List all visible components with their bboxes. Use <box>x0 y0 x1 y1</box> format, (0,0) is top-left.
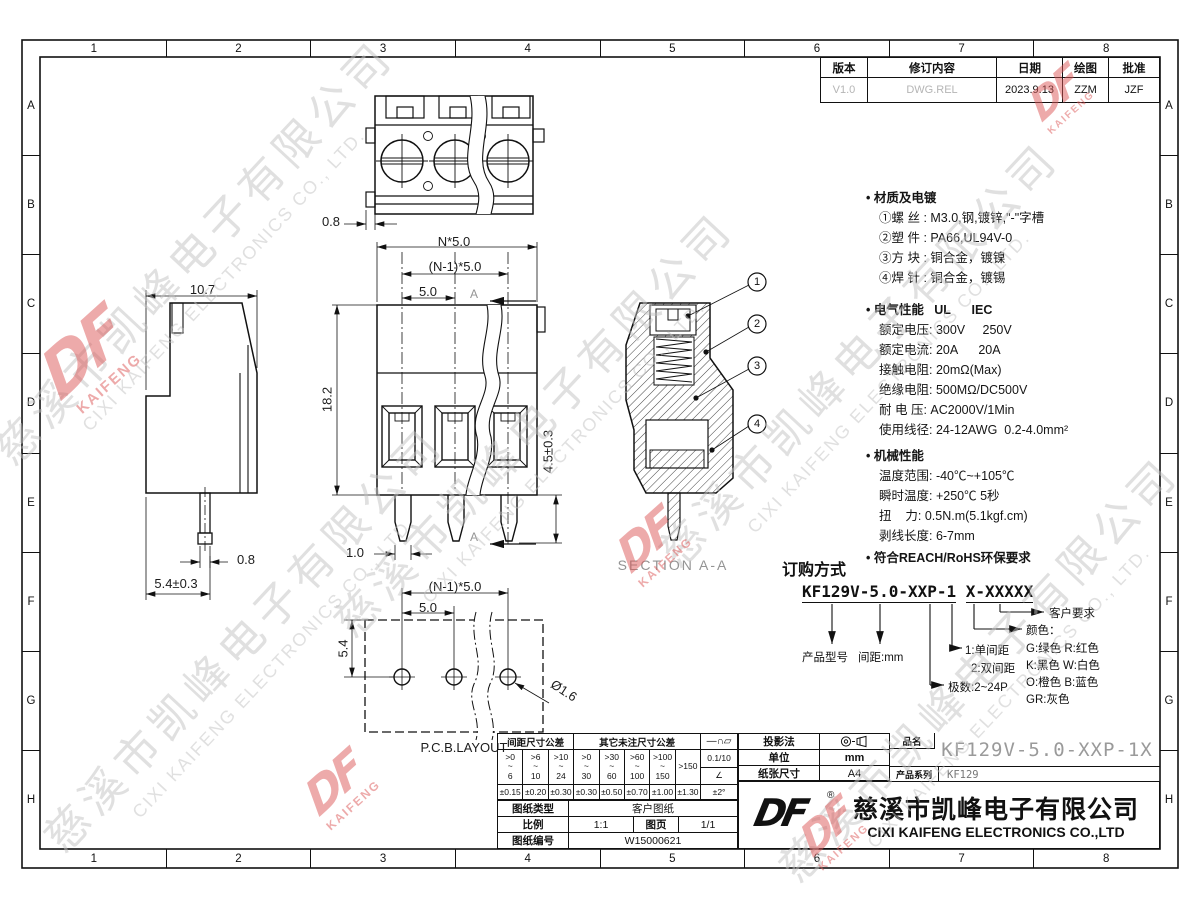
ordering-label-color-title: 颜色： <box>1026 622 1061 638</box>
company-name-en: CIXI KAIFENG ELECTRONICS CO.,LTD <box>841 824 1151 840</box>
rev-approved: JZF <box>1109 78 1159 102</box>
doc-no-label: 图纸编号 <box>498 833 569 848</box>
spec-line: 温度范围: -40℃~+105℃ <box>879 466 1166 486</box>
spec-line: ①螺 丝 : M3.0,钢,镀锌,"-"字槽 <box>879 208 1166 228</box>
page-label: 图页 <box>634 817 679 832</box>
spec-line: 扭 力: 0.5N.m(5.1kgf.cm) <box>879 506 1166 526</box>
ordering-code-suffix: X-XXXXX <box>966 582 1033 603</box>
doc-type-value: 客户图纸 <box>569 801 737 816</box>
page-value: 1/1 <box>679 817 737 832</box>
company-logo: DF <box>751 794 809 832</box>
tol-angle-value: ±2° <box>701 785 737 799</box>
ruler-label: 7 <box>890 849 1035 868</box>
ordering-label-pitch: 间距:mm <box>858 649 903 665</box>
ruler-label: H <box>22 751 40 849</box>
paper-value: A4 <box>820 766 889 781</box>
spec-mechanical: • 机械性能 温度范围: -40℃~+105℃ 瞬时温度: +250℃ 5秒 扭… <box>866 446 1166 546</box>
spec-line: ④焊 针 : 铜合金，镀锡 <box>879 268 1166 288</box>
spec-line: 额定电流: 20A 20A <box>879 340 1166 360</box>
tol-range: >0 ~ 30 <box>574 750 599 785</box>
spec-line: 剥线长度: 6-7mm <box>879 526 1166 546</box>
spec-line: 使用线径: 24-12AWG 0.2-4.0mm² <box>879 420 1166 440</box>
spec-material-title: • 材质及电镀 <box>866 188 1166 208</box>
projection-symbol <box>820 734 889 749</box>
dim-height: 18.2 <box>320 380 335 420</box>
tol-range: >0 ~ 6 <box>498 750 523 785</box>
dim-pcb-pitch: 5.0 <box>408 600 448 615</box>
doc-no-value: W15000621 <box>569 833 737 848</box>
tol-range: >6 ~ 10 <box>523 750 548 785</box>
spec-line: ③方 块 : 铜合金，镀镍 <box>879 248 1166 268</box>
ruler-label: 8 <box>1034 40 1178 57</box>
ruler-label: 1 <box>22 40 167 57</box>
doc-type-label: 图纸类型 <box>498 801 569 816</box>
spec-line: 接触电阻: 20mΩ(Max) <box>879 360 1166 380</box>
front-view <box>332 305 562 560</box>
spec-line: 耐 电 压: AC2000V/1Min <box>879 400 1166 420</box>
ordering-color-row: K:黑色 W:白色 <box>1026 657 1100 673</box>
ruler-label: 2 <box>167 849 312 868</box>
series-label: 产品系列 <box>890 767 939 782</box>
dim-pin-length: 4.5±0.3 <box>541 422 556 482</box>
revision-table: 版本 修订内容 日期 绘图 批准 V1.0 DWG.REL 2023.9.13 … <box>820 57 1160 103</box>
tol-value: ±0.30 <box>574 785 599 799</box>
dim-side-pin: 0.8 <box>231 552 261 567</box>
ruler-label: 6 <box>745 40 890 57</box>
spec-line: 绝缘电阻: 500MΩ/DC500V <box>879 380 1166 400</box>
rev-content: DWG.REL <box>868 78 997 102</box>
spec-electrical: • 电气性能 UL IEC 额定电压: 300V 250V 额定电流: 20A … <box>866 300 1166 440</box>
registered-mark: ® <box>827 790 834 801</box>
tol-value: ±1.30 <box>676 785 701 799</box>
tol-range: >30 ~ 60 <box>600 750 625 785</box>
rev-version: V1.0 <box>821 78 868 102</box>
ruler-label: F <box>22 553 40 652</box>
ruler-label: 5 <box>601 849 746 868</box>
scale-value: 1:1 <box>569 817 634 832</box>
ruler-label: 4 <box>456 849 601 868</box>
ruler-label: A <box>22 57 40 156</box>
section-view <box>626 273 766 540</box>
ordering-color-row: O:橙色 B:蓝色 <box>1026 674 1098 690</box>
spec-line: 额定电压: 300V 250V <box>879 320 1166 340</box>
ordering-label-product: 产品型号 <box>802 649 848 665</box>
ruler-bottom: 12345678 <box>22 849 1178 868</box>
dim-pcb-row: 5.4 <box>336 631 351 667</box>
ruler-label: G <box>1160 652 1178 751</box>
rev-date: 2023.9.13 <box>997 78 1063 102</box>
projection-label: 投影法 <box>739 734 820 749</box>
ruler-label: C <box>22 255 40 354</box>
tolerance-table: 间距尺寸公差 其它未注尺寸公差 —∩▱ >0 ~ 6 >6 ~ 10 >10 ~… <box>497 733 738 800</box>
dim-pcb-span: (N-1)*5.0 <box>410 579 500 594</box>
balloon-4: 4 <box>748 415 766 433</box>
dim-topview-0_8: 0.8 <box>314 214 348 229</box>
series-value: KF129 <box>939 767 1160 782</box>
spec-line: 瞬时温度: +250℃ 5秒 <box>879 486 1166 506</box>
tol-value: ±1.00 <box>650 785 675 799</box>
ruler-label: F <box>1160 553 1178 652</box>
balloon-1: 1 <box>748 273 766 291</box>
ruler-left: ABCDEFGH <box>22 57 40 849</box>
rev-header: 修订内容 <box>868 58 997 78</box>
spec-compliance: • 符合REACH/RoHS环保要求 <box>866 548 1031 568</box>
balloon-2: 2 <box>748 315 766 333</box>
ruler-label: 4 <box>456 40 601 57</box>
dim-side-offset: 5.4±0.3 <box>144 576 208 591</box>
dim-pin-width: 1.0 <box>340 545 370 560</box>
rev-header: 批准 <box>1109 58 1159 78</box>
tol-flatness-cell: 0.1/10 ∠ <box>701 750 737 785</box>
ordering-label-double: 2:双间距 <box>971 660 1015 676</box>
rev-header: 版本 <box>821 58 868 78</box>
tol-value: ±0.15 <box>498 785 523 799</box>
dim-side-width: 10.7 <box>180 282 225 297</box>
scale-label: 比例 <box>498 817 569 832</box>
ruler-label: A <box>1160 57 1178 156</box>
ordering-label-poles: 极数:2~24P <box>948 679 1008 695</box>
rev-header: 日期 <box>997 58 1063 78</box>
tol-range: >60 ~ 100 <box>625 750 650 785</box>
engineering-drawing-sheet: 12345678 12345678 ABCDEFGH ABCDEFGH 版本 修… <box>0 0 1200 910</box>
ruler-label: 1 <box>22 849 167 868</box>
tol-range: >10 ~ 24 <box>549 750 574 785</box>
tol-value: ±0.30 <box>549 785 574 799</box>
section-label: SECTION A-A <box>603 557 743 573</box>
ruler-label: H <box>1160 751 1178 849</box>
ruler-label: G <box>22 652 40 751</box>
ruler-label: 6 <box>745 849 890 868</box>
ruler-label: 2 <box>167 40 312 57</box>
rev-header: 绘图 <box>1063 58 1109 78</box>
company-name-cn: 慈溪市凯峰电子有限公司 <box>841 790 1151 826</box>
part-value: KF129V-5.0-XXP-1X <box>934 733 1160 766</box>
pitch-dimensions <box>377 242 537 546</box>
ruler-label: E <box>22 454 40 553</box>
tol-value: ±0.20 <box>523 785 548 799</box>
ruler-label: 8 <box>1034 849 1178 868</box>
top-view <box>344 96 544 230</box>
tol-flatness: 0.1/10 <box>701 750 737 767</box>
dim-n1-pitch: (N-1)*5.0 <box>410 259 500 274</box>
document-info-table: 图纸类型 客户图纸 比例 1:1 图页 1/1 图纸编号 W15000621 <box>497 800 738 849</box>
spec-electrical-title: • 电气性能 UL IEC <box>866 300 1166 320</box>
ordering-code-main: KF129V-5.0-XXP-1 <box>802 582 956 603</box>
tol-value: ±0.70 <box>625 785 650 799</box>
ordering-code: KF129V-5.0-XXP-1 X-XXXXX <box>802 582 1033 601</box>
balloon-3: 3 <box>748 357 766 375</box>
part-label: 品名 <box>890 733 935 749</box>
tol-angle-symbol: ∠ <box>701 767 737 785</box>
part-name-block: 品名 KF129V-5.0-XXP-1X 产品系列 KF129 <box>890 733 1160 781</box>
tol-header-pitch: 间距尺寸公差 <box>498 734 574 750</box>
tol-range: >150 <box>676 750 701 785</box>
paper-label: 纸张尺寸 <box>739 766 820 781</box>
section-mark-top: A <box>466 287 482 301</box>
rev-drawn: ZZM <box>1063 78 1109 102</box>
ruler-label: 5 <box>601 40 746 57</box>
section-mark-bottom: A <box>466 530 482 544</box>
tol-header-other: 其它未注尺寸公差 <box>574 734 701 750</box>
unit-label: 单位 <box>739 750 820 765</box>
ordering-color-row: GR:灰色 <box>1026 691 1069 707</box>
ruler-label: 7 <box>890 40 1035 57</box>
spec-mechanical-title: • 机械性能 <box>866 446 1166 466</box>
dim-pitch: 5.0 <box>408 284 448 299</box>
ruler-label: 3 <box>311 849 456 868</box>
ordering-label-single: 1:单间距 <box>965 642 1009 658</box>
tol-value: ±0.50 <box>600 785 625 799</box>
tol-symbols: —∩▱ <box>701 734 737 750</box>
projection-block: 投影法 单位 mm 纸张尺寸 A4 <box>738 733 890 781</box>
ruler-label: 3 <box>311 40 456 57</box>
ordering-label-customer: 客户要求 <box>1049 605 1095 621</box>
company-block: DF ® 慈溪市凯峰电子有限公司 CIXI KAIFENG ELECTRONIC… <box>738 781 1160 849</box>
spec-line: ②塑 件 : PA66,UL94V-0 <box>879 228 1166 248</box>
unit-value: mm <box>820 750 889 765</box>
dim-n-pitch: N*5.0 <box>424 234 484 249</box>
spec-material: • 材质及电镀 ①螺 丝 : M3.0,钢,镀锌,"-"字槽 ②塑 件 : PA… <box>866 188 1166 288</box>
ordering-color-row: G:绿色 R:红色 <box>1026 640 1099 656</box>
ruler-label: B <box>22 156 40 255</box>
tol-range: >100 ~ 150 <box>650 750 675 785</box>
ruler-top: 12345678 <box>22 40 1178 57</box>
ruler-label: D <box>22 354 40 453</box>
ordering-title: 订购方式 <box>782 556 846 580</box>
